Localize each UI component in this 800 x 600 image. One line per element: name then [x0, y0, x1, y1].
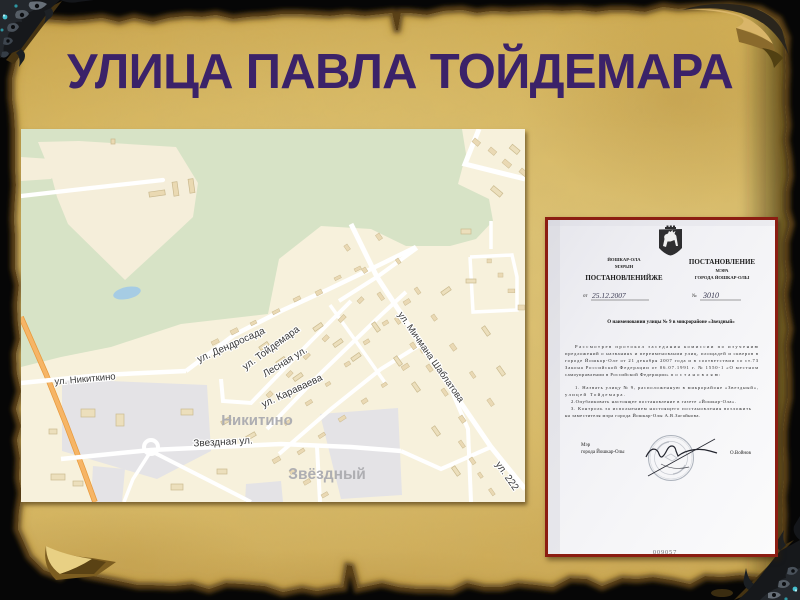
- svg-text:3. Контроль за исполнением нас: 3. Контроль за исполнением настоящего по…: [571, 406, 751, 411]
- svg-text:Звёздный: Звёздный: [288, 466, 366, 483]
- svg-text:Мэр: Мэр: [581, 443, 591, 448]
- svg-text:2.Опубликовать настоящее поста: 2.Опубликовать настоящее постановление в…: [571, 399, 736, 404]
- svg-text:ПОСТАНОВЛЕНИЙЖЕ: ПОСТАНОВЛЕНИЙЖЕ: [585, 274, 663, 282]
- svg-text:О наименовании улицы № 9 в ми: О наименовании улицы № 9 в микрорайоне «…: [607, 319, 735, 325]
- svg-text:от: от: [583, 294, 588, 299]
- svg-text:на заместителя мэра города Й: на заместителя мэра города Йошкар-Олы А.…: [565, 413, 700, 418]
- svg-text:009057: 009057: [653, 549, 677, 556]
- svg-text:самоуправлении в Российской Фе: самоуправлении в Российской Федерации» п…: [565, 372, 720, 377]
- svg-text:3010: 3010: [702, 291, 719, 300]
- svg-text:МЭРА: МЭРА: [716, 268, 730, 273]
- svg-text:ЙОШКАР-ОЛА: ЙОШКАР-ОЛА: [607, 257, 641, 262]
- svg-text:Никитино: Никитино: [221, 412, 293, 429]
- svg-text:городе Йошкар-Оле от 21 декабр: городе Йошкар-Оле от 21 декабря 2007 год…: [565, 358, 759, 363]
- svg-text:Закона Российской Федерации от: Закона Российской Федерации от 06.07.199…: [565, 365, 758, 370]
- svg-text:25.12.2007: 25.12.2007: [592, 291, 626, 300]
- svg-text:ГОРОДА ЙОШКАР-ОЛЫ: ГОРОДА ЙОШКАР-ОЛЫ: [695, 275, 750, 280]
- svg-text:улицей Тойдемара.: улицей Тойдемара.: [565, 392, 625, 397]
- svg-text:ПОСТАНОВЛЕНИЕ: ПОСТАНОВЛЕНИЕ: [689, 258, 755, 266]
- svg-text:О.Войнов: О.Войнов: [730, 451, 752, 456]
- svg-text:МЭРЫН: МЭРЫН: [615, 264, 634, 269]
- svg-text:№: №: [692, 293, 697, 299]
- svg-text:города Йошкар-Олы: города Йошкар-Олы: [581, 449, 625, 455]
